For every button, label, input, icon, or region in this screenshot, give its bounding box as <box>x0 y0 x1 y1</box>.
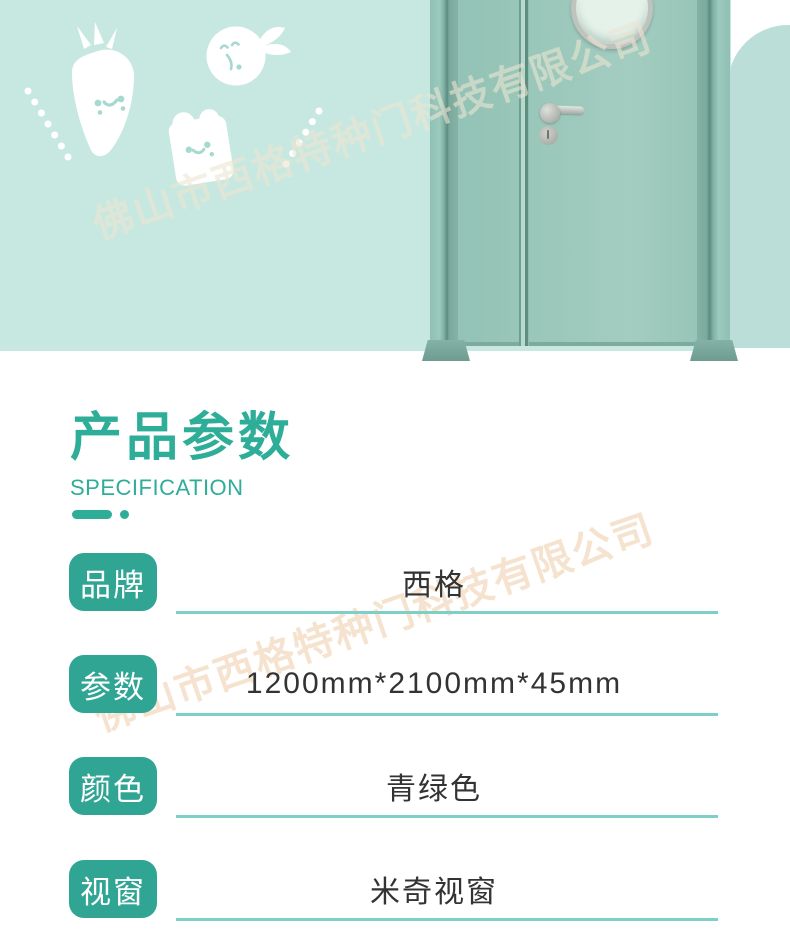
row-underline <box>176 918 718 921</box>
food-illustration <box>0 15 345 195</box>
spec-label-badge: 颜色 <box>69 757 157 815</box>
door-frame-foot-right <box>690 340 738 361</box>
spec-label-badge: 参数 <box>69 655 157 713</box>
spec-row-window: 视窗 米奇视窗 <box>0 860 790 922</box>
bread-icon <box>166 106 235 187</box>
spec-value: 1200mm*2100mm*45mm <box>150 655 718 713</box>
door-leaves <box>458 0 697 346</box>
row-underline <box>176 815 718 818</box>
row-underline <box>176 611 718 614</box>
spec-label-badge: 视窗 <box>69 860 157 918</box>
page: 佛山市西格特种门科技有限公司 佛山市西格特种门科技有限公司 产品参数 SPECI… <box>0 0 790 937</box>
door-frame-foot-left <box>422 340 470 361</box>
section-subtitle: SPECIFICATION <box>70 476 244 500</box>
spec-row-brand: 品牌 西格 <box>0 553 790 615</box>
section-title: 产品参数 <box>70 410 294 466</box>
spec-value: 西格 <box>150 553 718 611</box>
dots-decoration-left <box>25 88 72 161</box>
spec-value: 青绿色 <box>150 757 718 815</box>
orange-icon <box>207 27 292 86</box>
spec-label-badge: 品牌 <box>69 553 157 611</box>
row-underline <box>176 713 718 716</box>
arch-shape <box>728 25 790 348</box>
dots-decoration-right <box>283 108 323 168</box>
dash-decoration <box>72 510 112 519</box>
door-frame-left <box>430 0 458 352</box>
door-lock-icon <box>539 126 558 145</box>
dot-decoration <box>120 510 129 519</box>
spec-row-color: 颜色 青绿色 <box>0 757 790 819</box>
carrot-icon <box>72 22 134 156</box>
spec-row-size: 参数 1200mm*2100mm*45mm <box>0 655 790 717</box>
door-handle-rosette <box>540 103 560 123</box>
spec-value: 米奇视窗 <box>150 860 718 918</box>
door-frame-right <box>697 0 730 352</box>
door-divider-line <box>519 0 529 346</box>
